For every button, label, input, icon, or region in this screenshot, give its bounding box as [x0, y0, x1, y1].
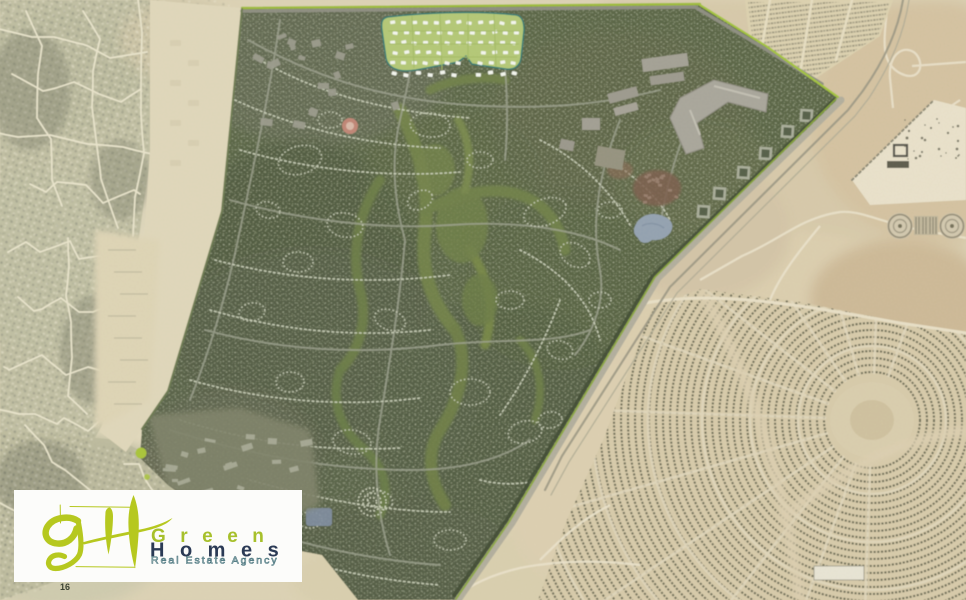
svg-text:Real Estate Agency: Real Estate Agency [151, 555, 279, 567]
svg-text:16: 16 [60, 582, 70, 592]
